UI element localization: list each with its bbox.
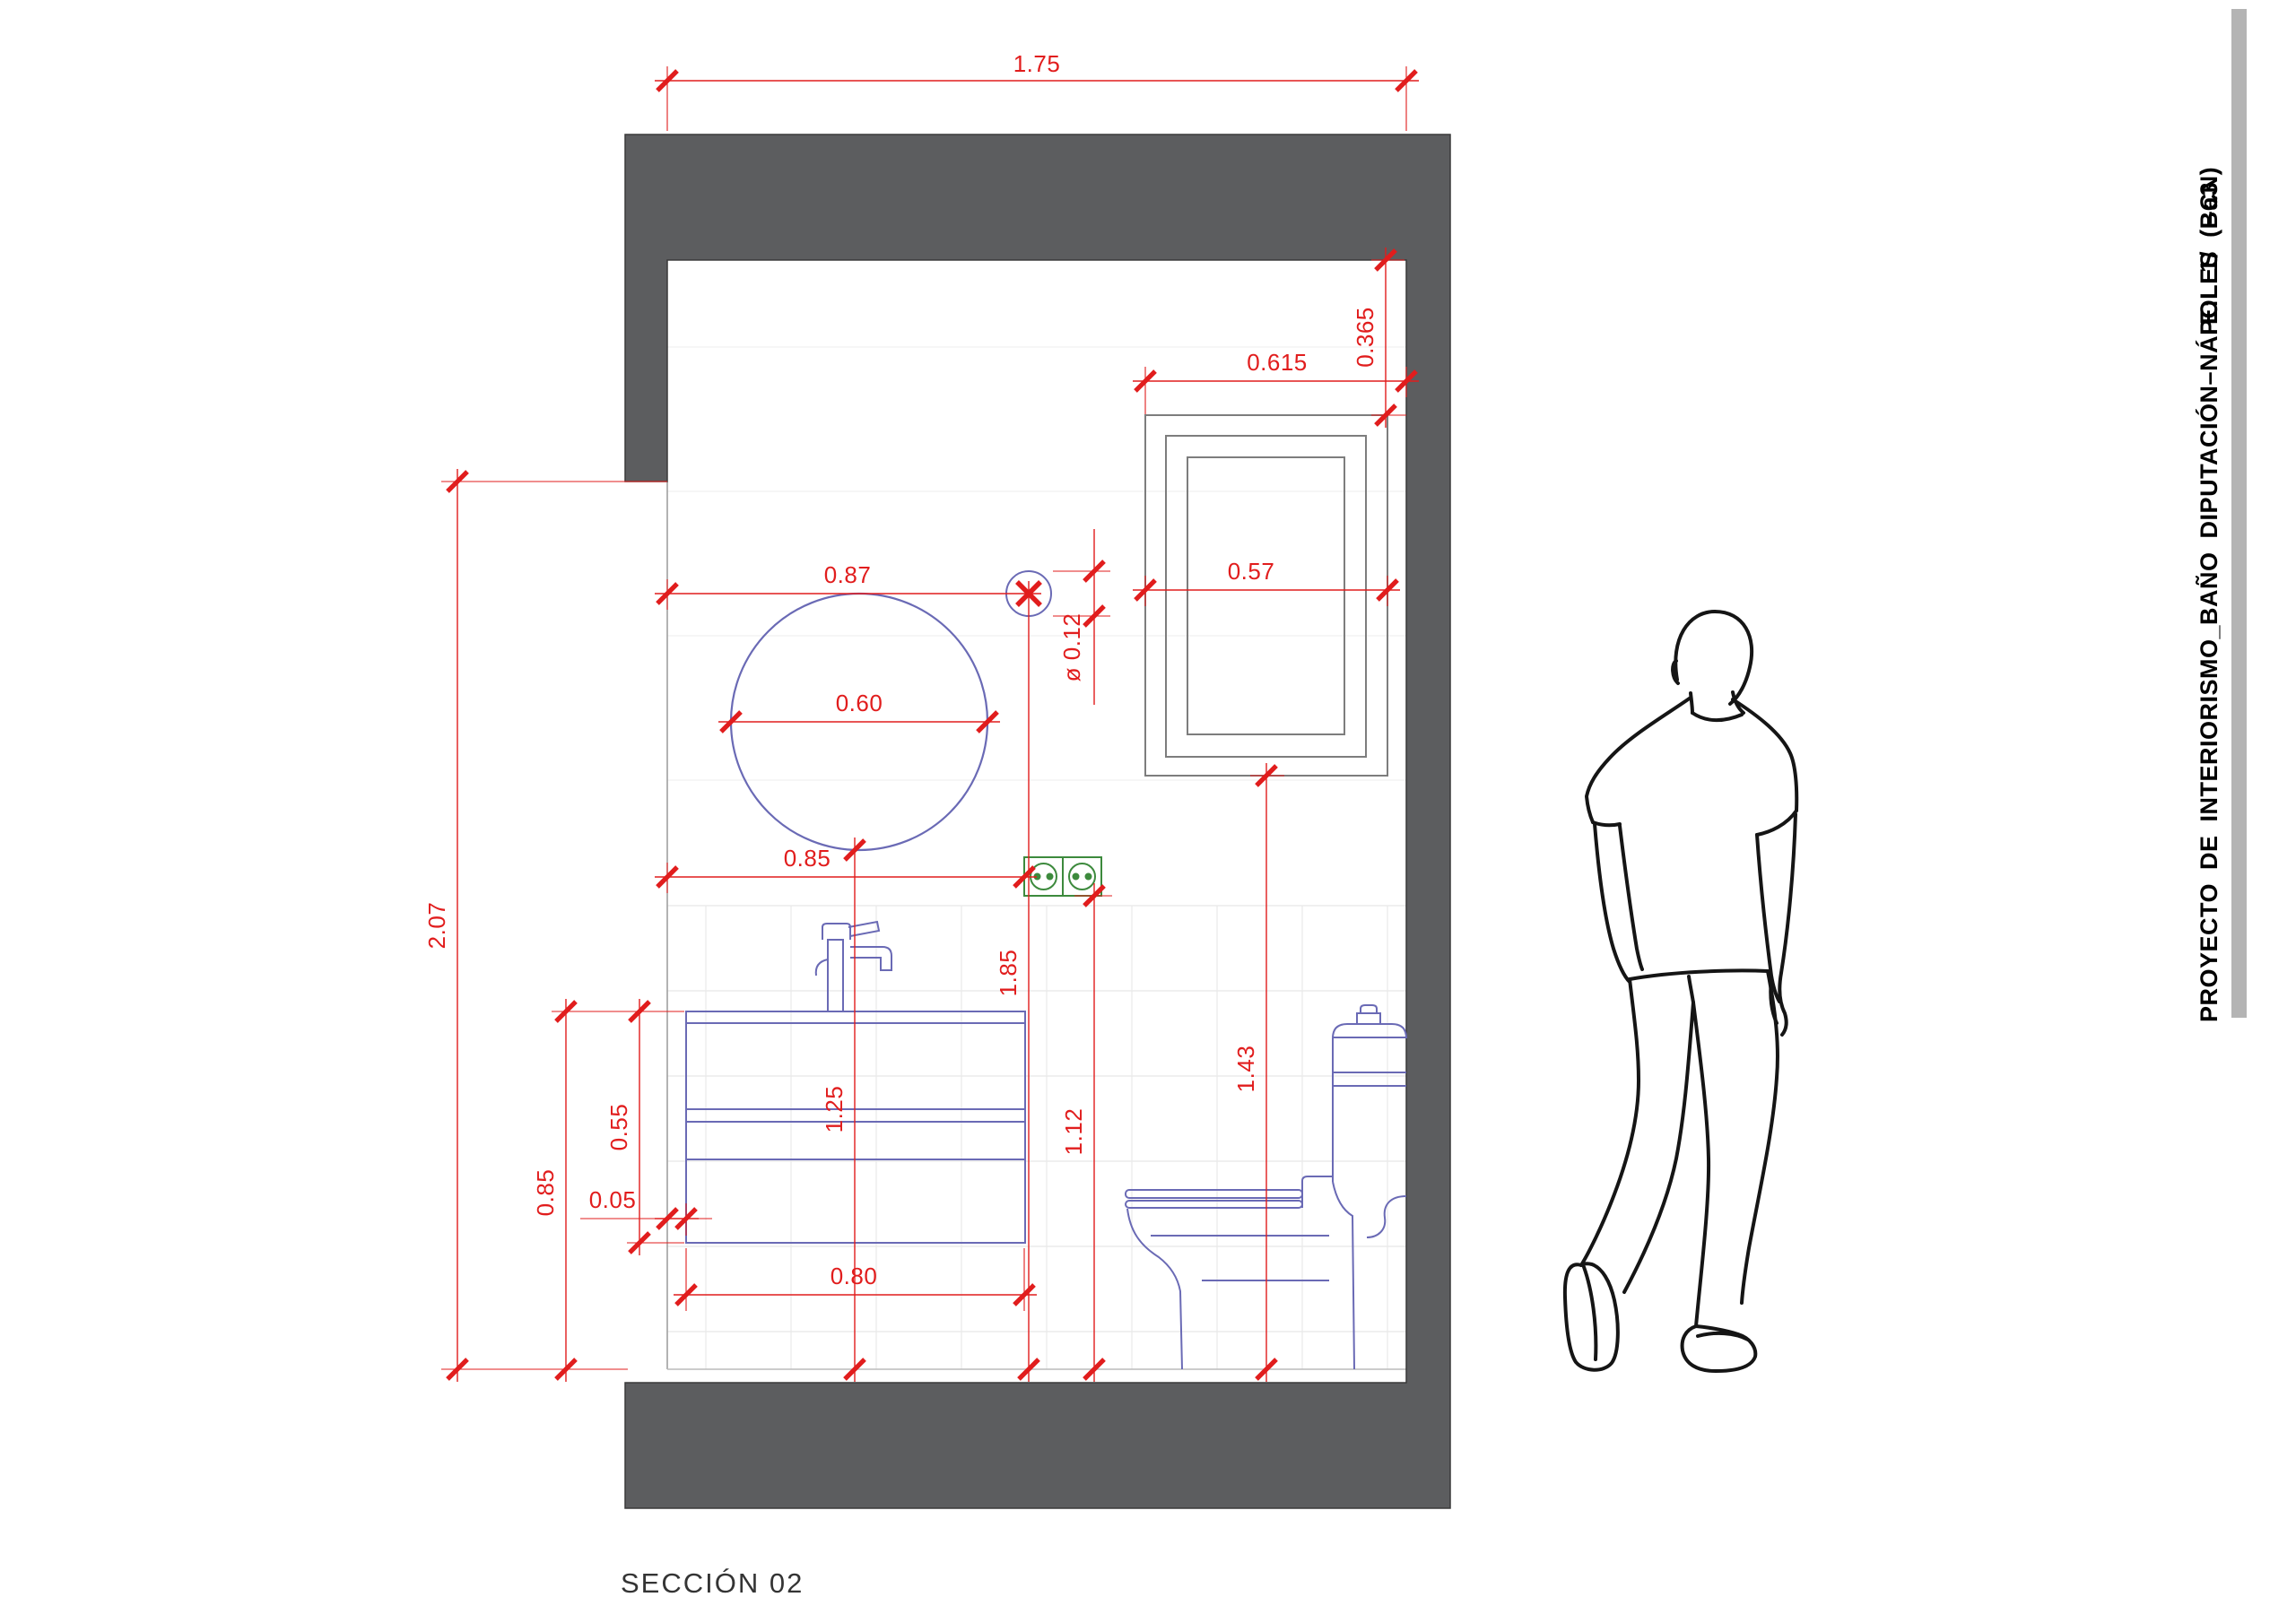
socket-pin <box>1086 874 1091 880</box>
human-figure <box>1565 612 1796 1371</box>
faucet-head <box>822 924 850 940</box>
figure-collar <box>1692 713 1742 720</box>
dimension-value: 0.60 <box>836 690 883 716</box>
dimension-value: 0.85 <box>532 1169 559 1217</box>
title-block-bar <box>2231 9 2247 1018</box>
dimension-value: 0.57 <box>1228 558 1275 585</box>
toilet-seat <box>1126 1201 1302 1208</box>
toilet-flush-button <box>1361 1005 1377 1013</box>
mirror-cabinet-inner-frame <box>1187 457 1344 734</box>
toilet-bowl-front <box>1127 1209 1182 1369</box>
dimension-value: 0.365 <box>1352 307 1378 368</box>
dimension-value: 1.25 <box>821 1086 848 1133</box>
dimension-value: 0.05 <box>589 1186 637 1213</box>
figure-left-leg <box>1581 979 1639 1265</box>
dimension-0.60: 0.60 <box>718 690 1000 732</box>
socket-pin <box>1074 874 1079 880</box>
dimension-value: ø 0.12 <box>1058 613 1085 682</box>
dimension-value: 0.55 <box>605 1104 632 1151</box>
figure-left-shoe-heel <box>1584 1267 1596 1359</box>
dimension-0.05: 0.05 <box>580 1186 712 1236</box>
dimension-0.57: 0.57 <box>1133 558 1400 606</box>
figure-shirt-hem <box>1630 970 1768 979</box>
section-wall-poche <box>625 135 1450 1508</box>
faucet-body <box>828 940 843 1011</box>
faucet <box>816 922 891 1011</box>
figure-left-sleeve <box>1593 822 1620 825</box>
toilet-water-inlet <box>1367 1196 1406 1237</box>
dimension-value: 0.85 <box>784 845 831 872</box>
dimension-1.75: 1.75 <box>655 50 1419 131</box>
figure-left-arm <box>1620 826 1642 969</box>
section-title: SECCIÓN 02 <box>621 1567 804 1600</box>
dimension-1.43: 1.43 <box>1232 763 1284 1382</box>
toilet-lid <box>1126 1190 1302 1198</box>
section-drawing-sheet: 1.752.070.870.600.85ø 0.121.851.121.430.… <box>0 0 2296 1623</box>
bathroom-section-drawing: 1.752.070.870.600.85ø 0.121.851.121.430.… <box>0 0 2296 1623</box>
figure-right-arm <box>1779 814 1796 1035</box>
faucet-hose <box>816 959 828 976</box>
socket-pin <box>1048 874 1053 880</box>
dimension-1.12: 1.12 <box>1060 883 1112 1382</box>
faucet-lever <box>848 922 879 936</box>
dimension-value: 2.07 <box>423 902 450 950</box>
dimension-value: 1.43 <box>1232 1046 1259 1093</box>
dimension-value: 0.80 <box>831 1263 878 1289</box>
dimension-0.55: 0.55 <box>605 999 684 1255</box>
dimension-value: 1.12 <box>1060 1108 1087 1156</box>
figure-left-shoe <box>1565 1263 1618 1369</box>
dimension-value: 1.75 <box>1013 50 1061 77</box>
vanity-body <box>686 1011 1025 1243</box>
figure-left-arm <box>1595 824 1630 982</box>
dimension-value: 1.85 <box>995 950 1022 997</box>
figure-left-leg <box>1624 1002 1693 1292</box>
mirror-cabinet-mid-frame <box>1166 436 1366 757</box>
mirror-cabinet <box>1145 415 1387 776</box>
figure-right-sleeve <box>1757 811 1796 835</box>
figure-left-shoulder <box>1587 698 1691 822</box>
dimension-2.07: 2.07 <box>423 469 667 1382</box>
dimension-0.87: 0.87 <box>655 561 1041 610</box>
figure-right-leg <box>1742 971 1778 1303</box>
faucet-spout <box>850 947 891 970</box>
figure-seam <box>1689 976 1693 1002</box>
dimension-1.85: 1.85 <box>995 581 1039 1382</box>
mirror-cabinet-outer-frame <box>1145 415 1387 776</box>
scale-label: E: 1/ –a3 <box>2196 181 2223 325</box>
dimension-0.85: 0.85 <box>655 845 1037 893</box>
dimension-0.365: 0.365 <box>1352 247 1406 428</box>
dimension-0.12: ø 0.12 <box>1053 529 1110 705</box>
toilet-tank <box>1333 1024 1406 1182</box>
figure-head <box>1675 612 1752 704</box>
figure-right-leg <box>1693 1002 1709 1326</box>
vanity-cabinet <box>686 1011 1025 1243</box>
toilet-pedestal-back <box>1333 1182 1354 1369</box>
dimension-value: 0.615 <box>1247 349 1308 376</box>
dimension-value: 0.87 <box>824 561 872 588</box>
toilet-flush-button-base <box>1357 1013 1380 1024</box>
toilet-seat-hinge <box>1302 1176 1333 1208</box>
